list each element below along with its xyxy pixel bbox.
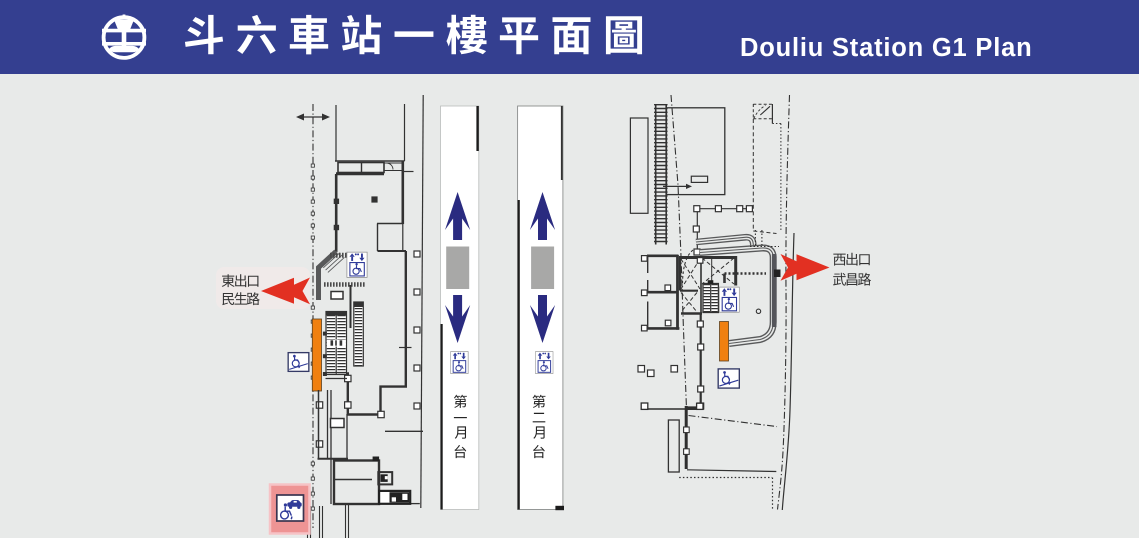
svg-text:Douliu Station G1 Plan: Douliu Station G1 Plan: [740, 34, 1032, 62]
